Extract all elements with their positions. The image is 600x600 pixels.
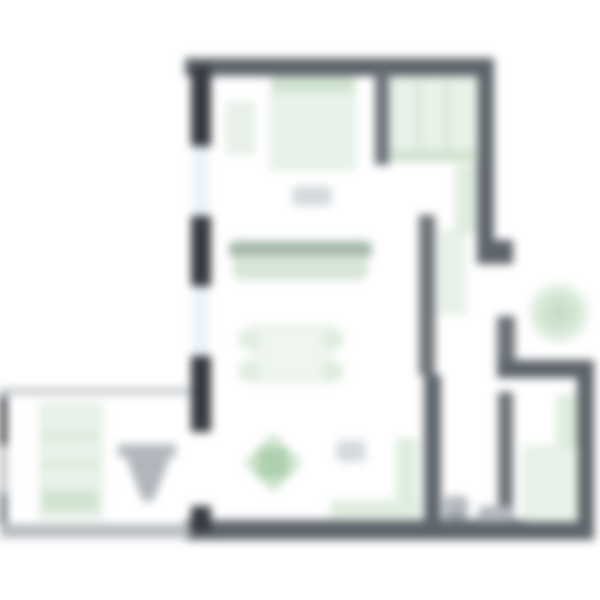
floor-plan-drawing (0, 0, 600, 600)
annex-left-post-top (0, 397, 7, 445)
chair-top-left (239, 330, 259, 348)
window-left-lower (193, 286, 209, 360)
left-wall-pier-4 (191, 506, 211, 532)
room-closet (389, 76, 477, 236)
room-label-smudge-living (336, 440, 366, 462)
dining-table (251, 325, 333, 383)
window-left-upper (193, 146, 209, 220)
lounger-slat-1 (43, 435, 97, 438)
green-storage-unit (524, 446, 578, 522)
plant-center (258, 448, 288, 478)
entry-plant-icon (528, 282, 590, 344)
top-wall (185, 58, 494, 76)
wardrobe-front-band (390, 150, 476, 162)
left-wall-pier-3 (191, 356, 211, 432)
left-wall-pier-1 (191, 66, 211, 146)
room-terrace (7, 395, 190, 524)
room-hallway (435, 215, 497, 375)
room-bathroom (441, 378, 498, 520)
room-storage (513, 378, 577, 520)
chair-bottom-left (239, 362, 259, 380)
room-label-smudge-bedroom (292, 186, 332, 206)
wardrobe-shelf-line-1 (417, 79, 420, 157)
lounger-slat-2 (43, 463, 97, 466)
washbasin-icon (478, 506, 512, 522)
sofa-seat (233, 256, 368, 280)
annex-top-wall (0, 388, 190, 395)
bed-headboard (271, 76, 353, 92)
wardrobe-shelf-line-2 (445, 79, 448, 157)
hallway-wall (419, 215, 435, 375)
chair-bottom-right (323, 362, 343, 380)
hall-cabinet (439, 230, 465, 314)
left-wall-pier-2 (191, 216, 211, 286)
right-wall-lower (577, 360, 594, 540)
door-swing-icon (126, 457, 170, 501)
wall-strip-unit (556, 394, 577, 446)
door-leaf-bar (118, 444, 176, 457)
bathroom-divider-wall (498, 392, 513, 522)
bathroom-left-wall (424, 375, 441, 522)
lounger-foot-band (43, 491, 97, 511)
toilet-tank (446, 514, 466, 522)
chair-top-right (323, 330, 343, 348)
room-bedroom (212, 76, 419, 240)
annex-bottom-wall (0, 524, 190, 538)
low-sideboard (330, 500, 420, 518)
nightstand (227, 102, 254, 154)
wardrobe-shelving (390, 77, 478, 161)
bottom-wall (185, 520, 594, 540)
room-living (212, 236, 419, 520)
floor-plan-screenshot (0, 0, 600, 600)
